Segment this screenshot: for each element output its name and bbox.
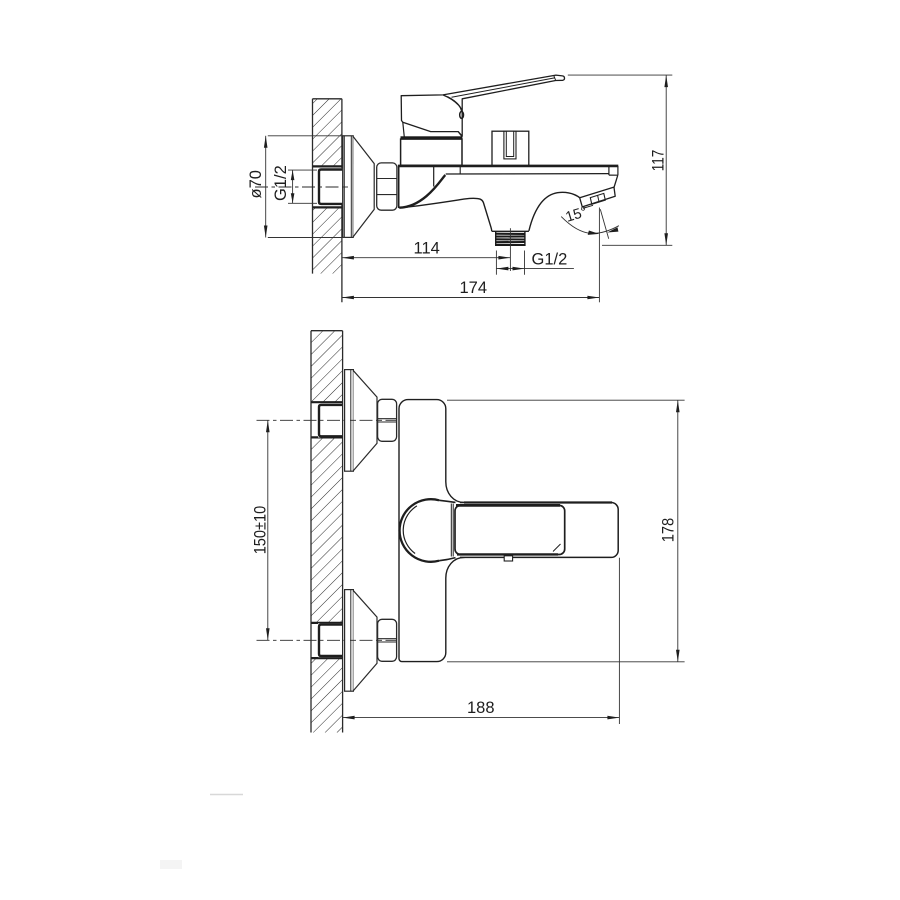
svg-text:174: 174 (460, 279, 488, 297)
svg-text:178: 178 (660, 518, 678, 543)
svg-text:G1/2: G1/2 (532, 250, 568, 268)
svg-text:117: 117 (649, 150, 667, 172)
svg-text:150±10: 150±10 (252, 506, 270, 555)
svg-text:ø70: ø70 (247, 170, 265, 198)
svg-text:G1/2: G1/2 (272, 165, 290, 201)
svg-text:188: 188 (467, 699, 495, 717)
svg-text:114: 114 (414, 239, 440, 257)
